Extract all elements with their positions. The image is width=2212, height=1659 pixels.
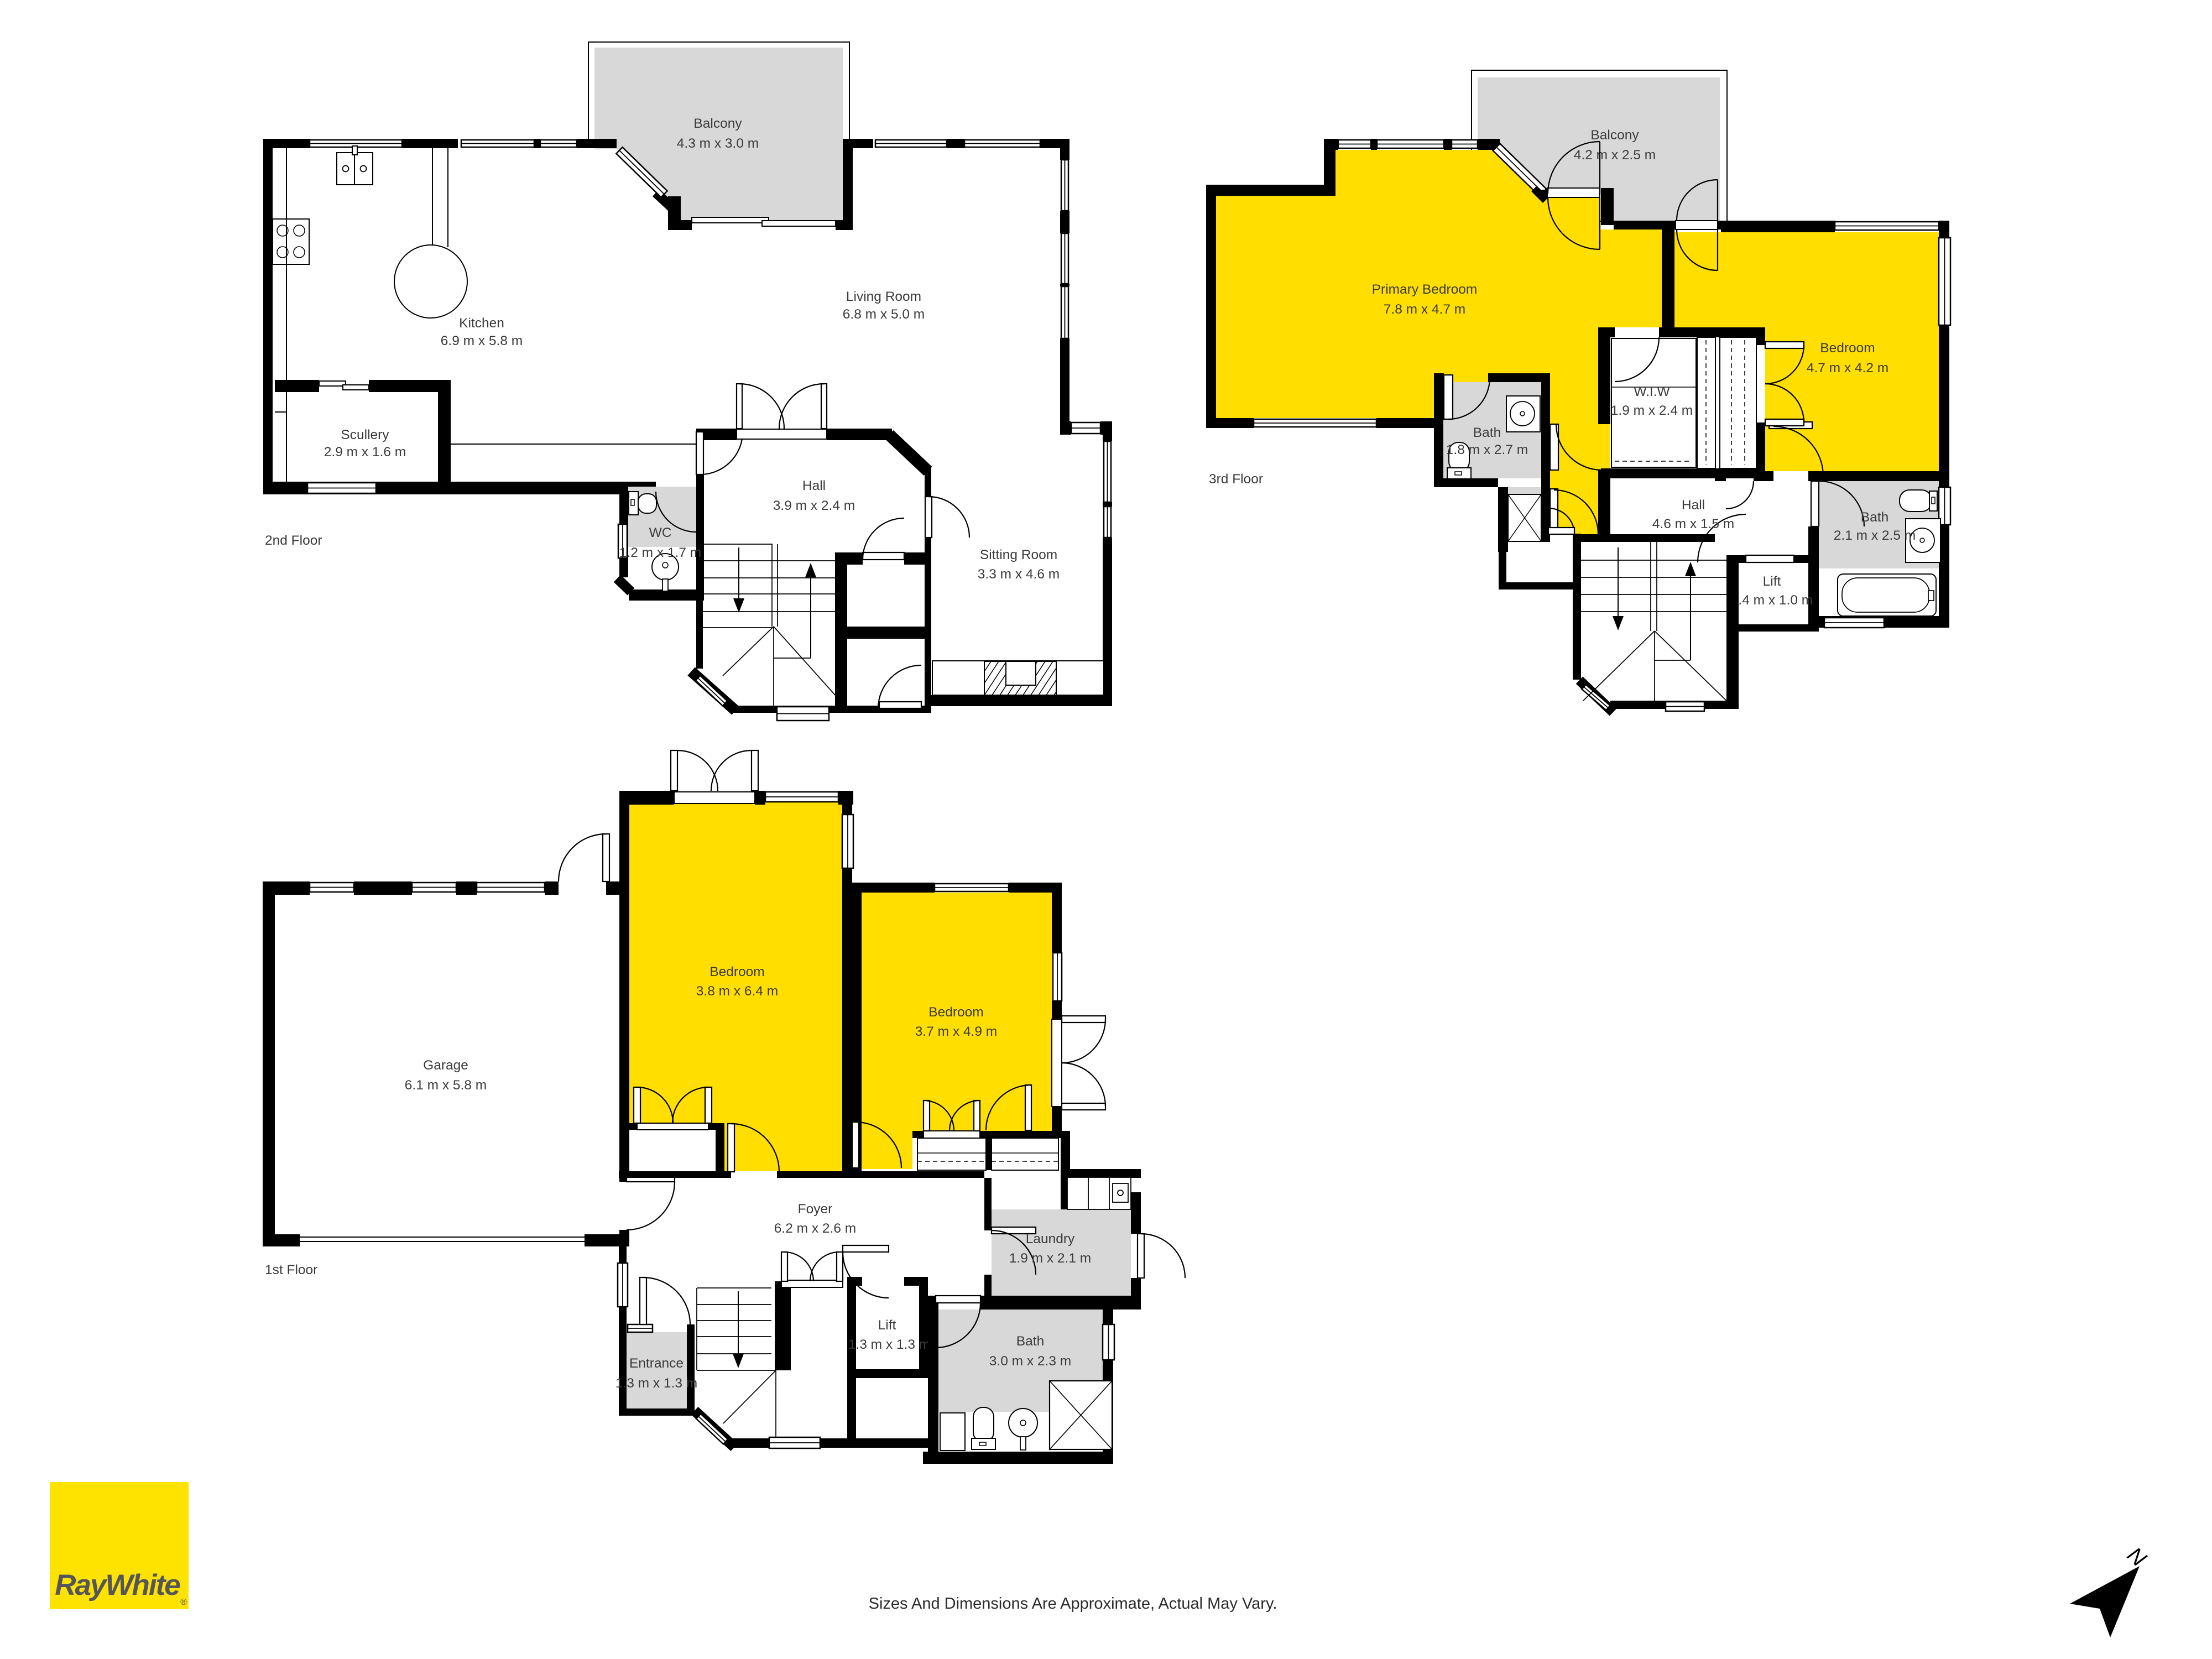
svg-text:6.9 m x 5.8 m: 6.9 m x 5.8 m (441, 333, 523, 348)
svg-text:Sizes And Dimensions Are Appro: Sizes And Dimensions Are Approximate, Ac… (869, 1595, 1277, 1613)
svg-text:1.3 m x 1.3 m: 1.3 m x 1.3 m (848, 1337, 930, 1352)
svg-text:Kitchen: Kitchen (459, 316, 504, 331)
svg-text:Entrance: Entrance (629, 1356, 684, 1371)
svg-text:3.8 m x 6.4 m: 3.8 m x 6.4 m (696, 984, 778, 999)
svg-text:Hall: Hall (1682, 498, 1705, 513)
svg-text:1.8 m x 2.7 m: 1.8 m x 2.7 m (1446, 442, 1528, 457)
svg-text:4.3 m x 3.0 m: 4.3 m x 3.0 m (677, 136, 759, 151)
svg-text:Bath: Bath (1473, 425, 1501, 440)
svg-text:3rd Floor: 3rd Floor (1209, 472, 1263, 487)
svg-text:Sitting Room: Sitting Room (980, 547, 1057, 562)
svg-text:Balcony: Balcony (1590, 128, 1639, 143)
svg-text:2.1 m x 2.5 m: 2.1 m x 2.5 m (1834, 528, 1916, 543)
svg-text:1.9 m x 2.4 m: 1.9 m x 2.4 m (1611, 403, 1693, 418)
svg-text:4.6 m x 1.5 m: 4.6 m x 1.5 m (1652, 517, 1734, 531)
svg-text:Laundry: Laundry (1026, 1232, 1075, 1246)
svg-text:Garage: Garage (423, 1058, 468, 1073)
svg-text:W.I.W: W.I.W (1634, 384, 1670, 399)
svg-text:3.9 m x 2.4 m: 3.9 m x 2.4 m (773, 498, 855, 513)
svg-text:Lift: Lift (1763, 574, 1781, 589)
svg-text:Bath: Bath (1016, 1334, 1044, 1349)
svg-text:Bedroom: Bedroom (1820, 341, 1875, 356)
svg-text:6.8 m x 5.0 m: 6.8 m x 5.0 m (843, 307, 925, 322)
svg-text:6.1 m x 5.8 m: 6.1 m x 5.8 m (405, 1078, 487, 1093)
svg-text:Bath: Bath (1861, 510, 1888, 525)
svg-text:7.8 m x 4.7 m: 7.8 m x 4.7 m (1384, 302, 1465, 317)
svg-text:Hall: Hall (802, 478, 826, 493)
svg-text:1.2 m x 1.7 m: 1.2 m x 1.7 m (619, 545, 701, 560)
svg-text:Living Room: Living Room (846, 289, 921, 304)
svg-text:1.3 m x 1.3 m: 1.3 m x 1.3 m (615, 1376, 697, 1391)
svg-text:1st Floor: 1st Floor (265, 1262, 317, 1277)
svg-text:Foyer: Foyer (798, 1202, 833, 1217)
svg-text:Scullery: Scullery (341, 427, 389, 442)
svg-text:Bedroom: Bedroom (928, 1005, 983, 1020)
svg-text:1.4 m x 1.0 m: 1.4 m x 1.0 m (1731, 593, 1813, 608)
svg-text:3.7 m x 4.9 m: 3.7 m x 4.9 m (915, 1024, 997, 1039)
svg-text:2.9 m x 1.6 m: 2.9 m x 1.6 m (324, 445, 406, 460)
svg-text:RayWhite: RayWhite (55, 1569, 180, 1601)
svg-text:®: ® (180, 1598, 187, 1607)
svg-text:4.7 m x 4.2 m: 4.7 m x 4.2 m (1807, 361, 1888, 375)
svg-text:Lift: Lift (878, 1318, 896, 1333)
svg-text:Primary Bedroom: Primary Bedroom (1372, 282, 1478, 297)
svg-text:6.2 m x 2.6 m: 6.2 m x 2.6 m (774, 1221, 856, 1236)
svg-text:WC: WC (649, 525, 672, 540)
svg-text:1.9 m x 2.1 m: 1.9 m x 2.1 m (1009, 1251, 1091, 1266)
svg-text:Bedroom: Bedroom (709, 964, 764, 979)
svg-text:Balcony: Balcony (693, 116, 742, 131)
svg-text:3.0 m x 2.3 m: 3.0 m x 2.3 m (989, 1354, 1071, 1369)
svg-text:4.2 m x 2.5 m: 4.2 m x 2.5 m (1574, 148, 1656, 163)
svg-text:3.3 m x 4.6 m: 3.3 m x 4.6 m (978, 567, 1060, 582)
svg-text:2nd Floor: 2nd Floor (265, 533, 322, 548)
